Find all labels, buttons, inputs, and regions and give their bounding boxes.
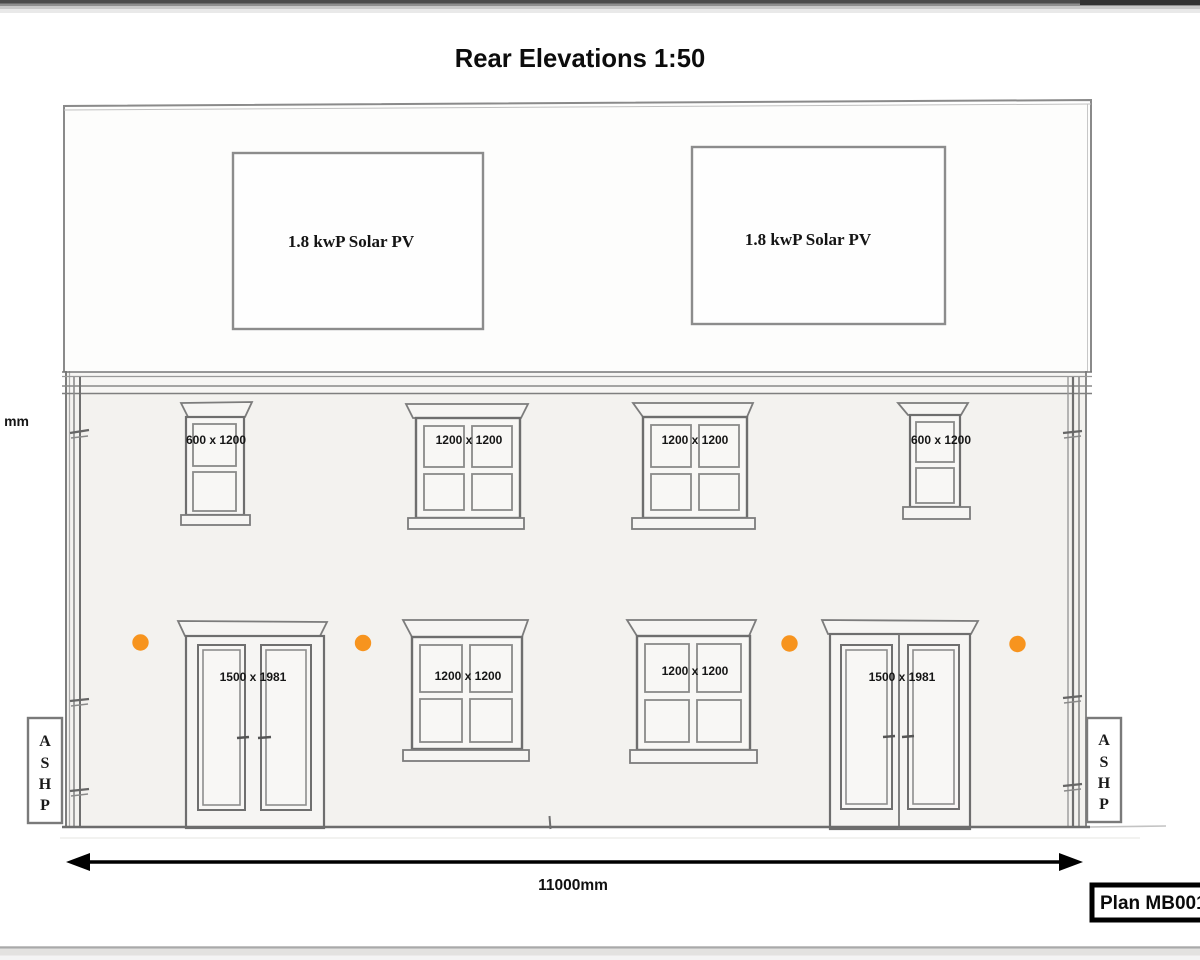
svg-text:1200 x 1200: 1200 x 1200 <box>662 664 729 678</box>
svg-text:A: A <box>39 733 51 750</box>
svg-text:1.8 kwP Solar PV: 1.8 kwP Solar PV <box>745 230 872 249</box>
svg-text:11000mm: 11000mm <box>538 877 608 894</box>
svg-text:A: A <box>1098 732 1110 749</box>
svg-text:1500 x 1981: 1500 x 1981 <box>869 670 936 684</box>
svg-text:Plan MB001.: Plan MB001. <box>1100 893 1200 914</box>
svg-text:mm: mm <box>4 413 29 429</box>
svg-text:S: S <box>41 755 50 772</box>
svg-text:600 x 1200: 600 x 1200 <box>186 433 246 447</box>
svg-text:1500 x 1981: 1500 x 1981 <box>220 670 287 684</box>
svg-text:P: P <box>40 797 50 814</box>
svg-text:H: H <box>1098 775 1111 792</box>
svg-text:H: H <box>39 776 52 793</box>
svg-text:1.8 kwP Solar PV: 1.8 kwP Solar PV <box>288 232 415 251</box>
svg-text:1200 x 1200: 1200 x 1200 <box>662 433 729 447</box>
svg-text:S: S <box>1100 754 1109 771</box>
svg-text:1200 x 1200: 1200 x 1200 <box>436 433 503 447</box>
svg-text:1200 x 1200: 1200 x 1200 <box>435 669 502 683</box>
svg-text:Rear Elevations 1:50: Rear Elevations 1:50 <box>455 45 705 73</box>
svg-text:600 x 1200: 600 x 1200 <box>911 433 971 447</box>
svg-text:P: P <box>1099 796 1109 813</box>
